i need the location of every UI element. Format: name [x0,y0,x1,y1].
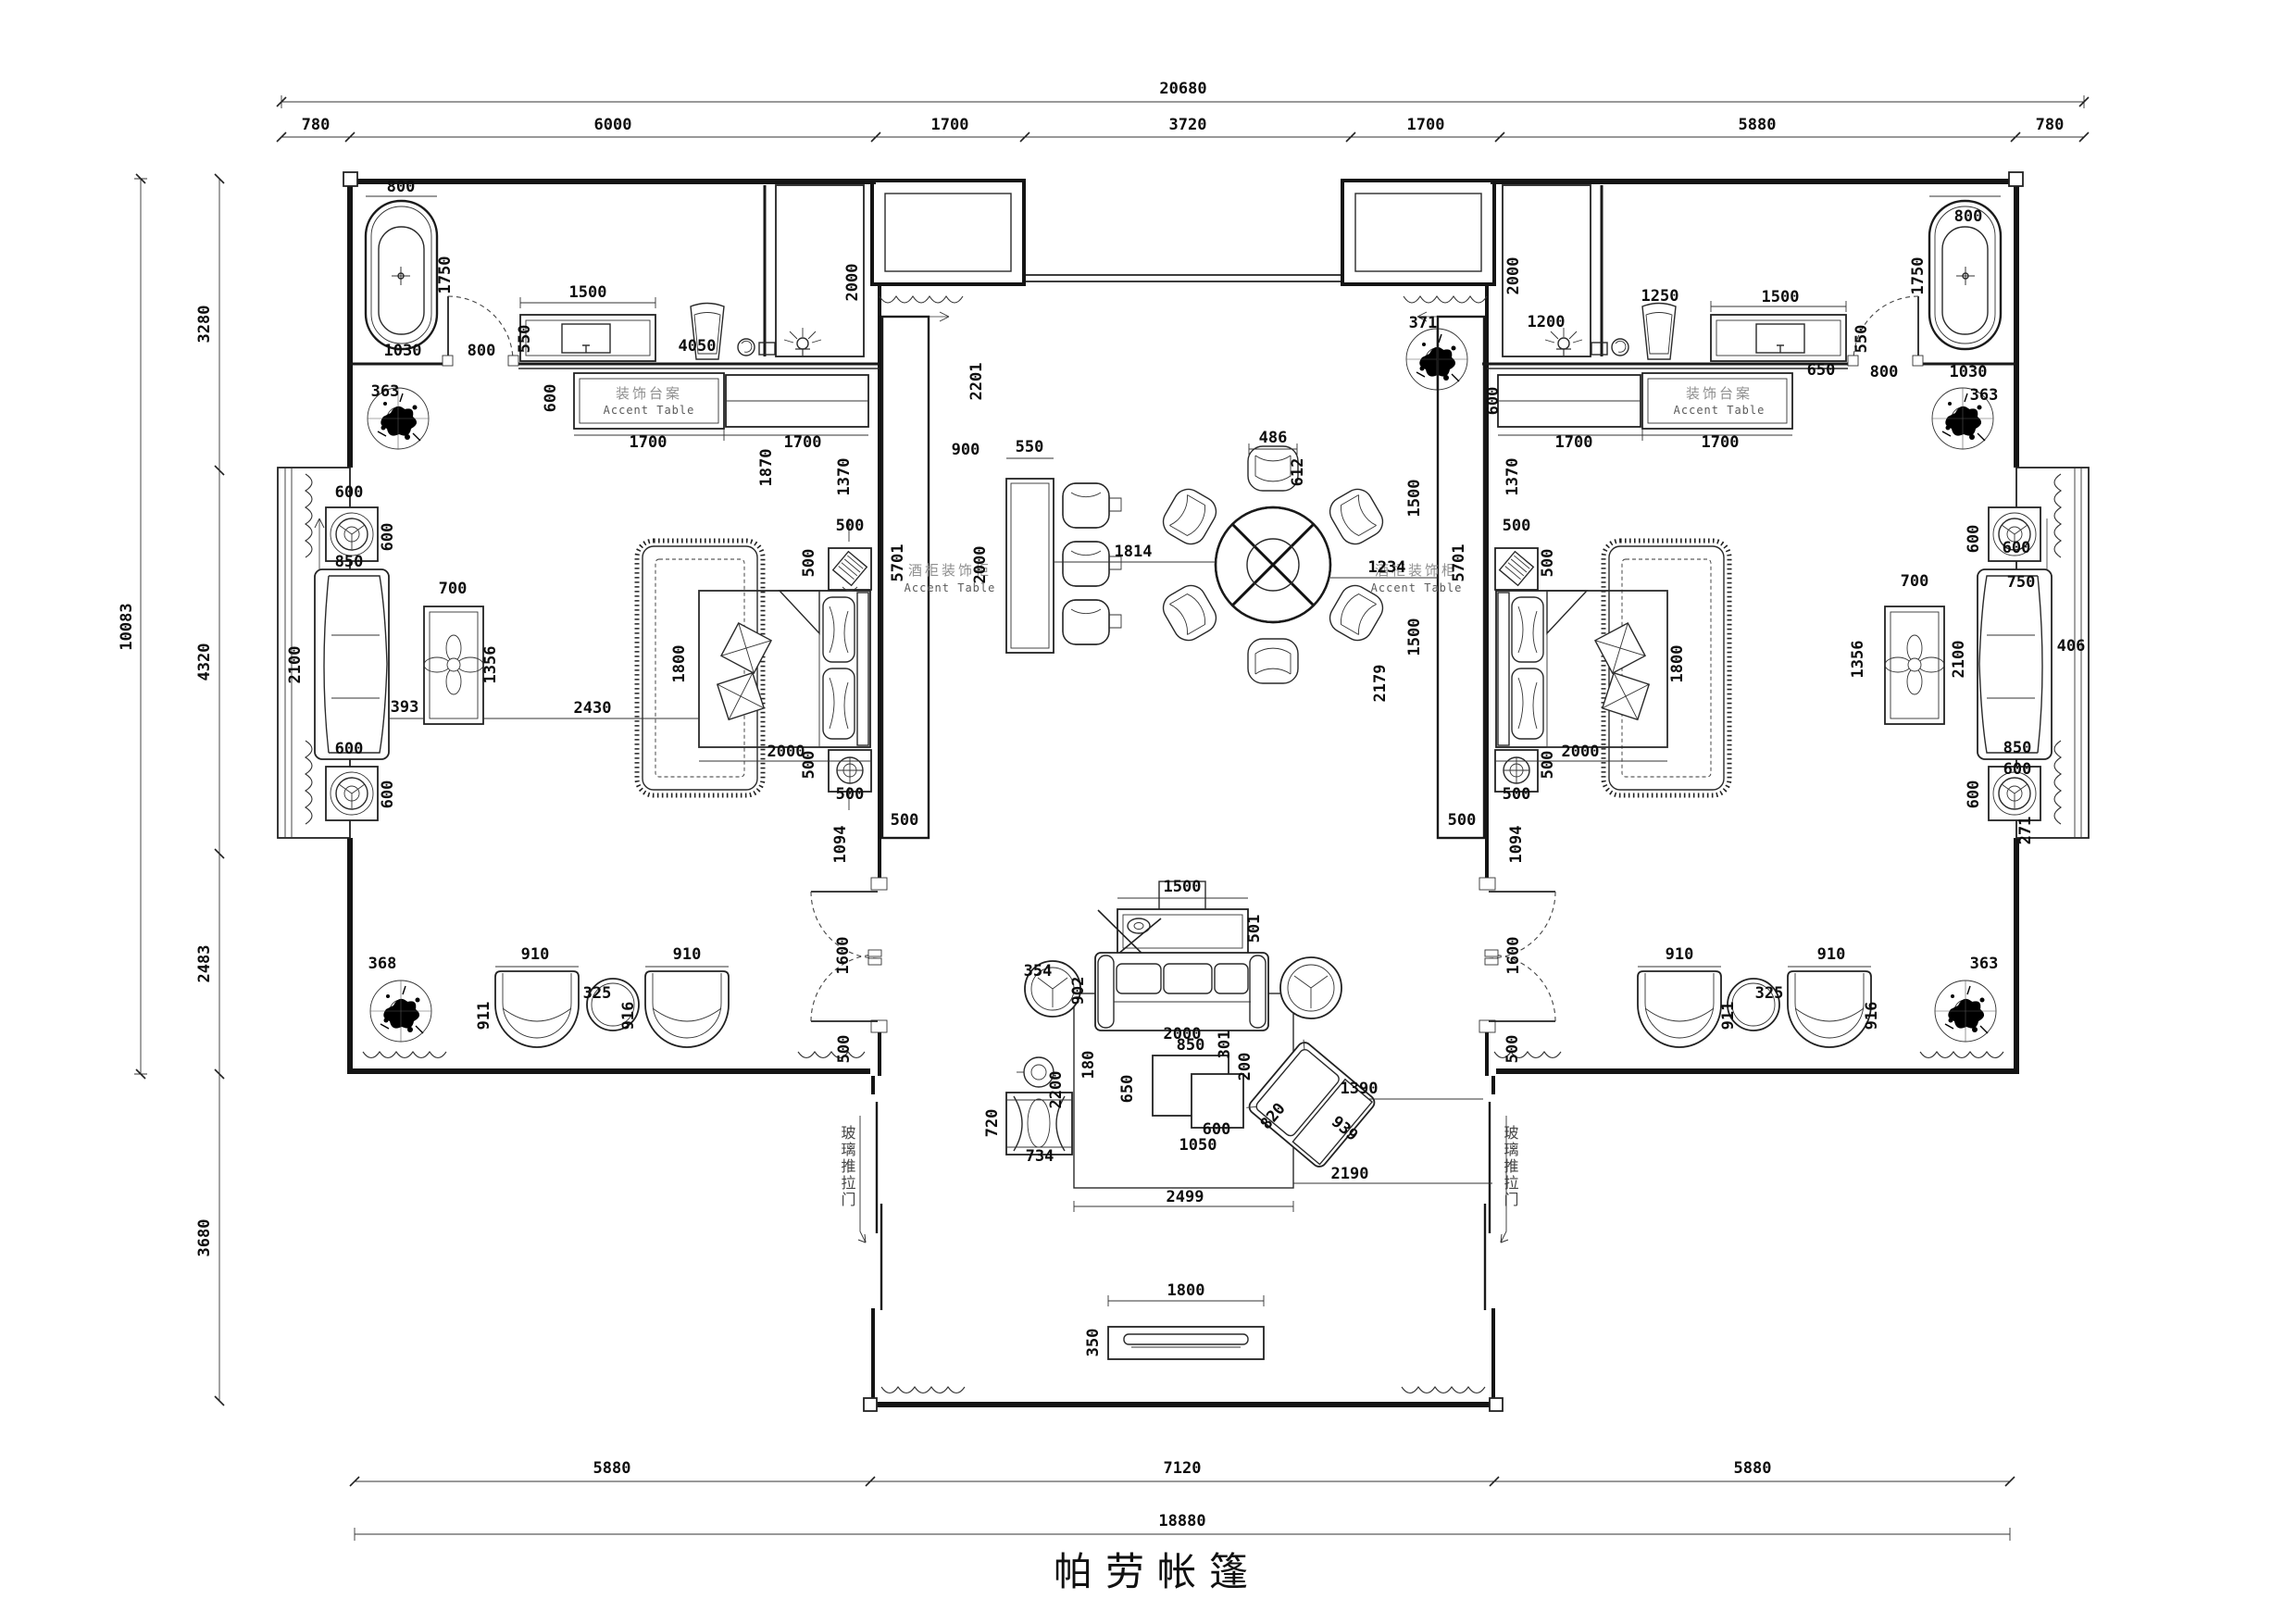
dim-label: 486 [1259,429,1288,447]
dim-label: 1030 [384,342,422,360]
hamper-right [1591,304,1676,360]
dim-label: 600 [542,384,560,413]
dim-label: 4320 [195,643,214,681]
dim-label: 600 [335,483,364,502]
dim-label: 1800 [670,645,689,683]
dim-label: 780 [2036,116,2065,134]
dim-label: 2499 [1167,1188,1204,1206]
dim-label: 910 [1817,945,1846,964]
dim-label: 368 [368,955,397,973]
dim-label: 1030 [1950,363,1988,381]
dim-label: 600 [379,523,397,552]
dim-label: 500 [836,785,865,804]
dim-label: 550 [516,325,534,354]
dim-label: 2201 [967,363,986,401]
dim-label: 2200 [1047,1071,1066,1109]
dim-label: 600 [1484,387,1503,416]
dim-label: 363 [1970,386,1999,405]
dim-label: 325 [1755,984,1784,1003]
dim-label: 2000 [971,546,990,584]
dim-label: 650 [1807,361,1836,380]
bathtub-left [366,201,437,349]
closet-box-left [872,181,1024,284]
dim-label: 902 [1069,977,1088,1006]
dim-label: 600 [1965,525,1983,554]
dim-label: 550 [1853,325,1871,354]
sliding-door-right: 玻璃推拉门 [1485,1102,1519,1310]
nightstand-right-top [1495,548,1538,590]
dim-label: 2100 [286,646,305,684]
dim-label: 600 [379,781,397,809]
dim-label: 1700 [1407,116,1445,134]
dim-label: 500 [1448,811,1477,830]
sliding-door-left: 玻璃推拉门 [839,1102,882,1310]
side-table-left-bottom [326,767,378,820]
dim-label: 2483 [195,945,214,983]
dim-label: 2430 [574,699,612,718]
living-sofa [1095,953,1268,1031]
dim-label: 1050 [1179,1136,1217,1155]
closet-box-right [1342,181,1494,284]
dim-label: 500 [800,751,818,780]
dim-label: 5880 [1739,116,1777,134]
dim-label: 3280 [195,306,214,344]
dim-label: 500 [1504,1035,1522,1064]
dim-label: 600 [2003,539,2031,557]
floor-plan-svg: 装饰台案 Accent Table 装饰台案 Accent Table [0,0,2296,1624]
coffee-table-left-wing [424,606,483,724]
dim-label: 1500 [569,283,607,302]
floor-plan-page: 装饰台案 Accent Table 装饰台案 Accent Table [0,0,2296,1624]
lounge-chair [1246,1040,1377,1169]
dimension-chains [134,95,2089,1541]
accent-table-right-cn: 装饰台案 [1686,385,1753,402]
sliding-door-left-label: 玻璃推拉门 [839,1125,856,1208]
walls [343,172,2023,1411]
dim-label: 1870 [757,449,776,487]
dim-label: 1094 [1507,826,1526,864]
dim-label: 500 [1539,549,1557,578]
dim-label: 2190 [1331,1165,1369,1183]
dim-label: 393 [391,698,419,717]
sliding-door-right-label: 玻璃推拉门 [1502,1125,1519,1208]
dim-label: 10083 [118,603,136,650]
dim-label: 800 [1954,207,1983,226]
dim-label: 18880 [1158,1512,1205,1530]
coffee-table-right-wing [1885,606,1944,724]
dim-label: 850 [335,553,364,571]
dim-label: 301 [1216,1031,1234,1059]
dim-label: 910 [521,945,550,964]
dim-label: 1500 [1164,878,1202,896]
dim-label: 1600 [834,937,853,975]
accent-table-left: 装饰台案 Accent Table [574,373,724,429]
dim-label: 800 [387,178,416,196]
dim-label: 1356 [1849,641,1867,679]
accent-table-right-en: Accent Table [1674,404,1766,417]
dim-label: 850 [1177,1036,1205,1055]
dim-label: 2100 [1950,641,1968,679]
accent-table-left-en: Accent Table [604,404,695,417]
dim-label: 700 [1901,572,1929,591]
dim-label: 1356 [481,646,500,684]
dim-label: 500 [835,1035,854,1064]
dim-label: 6000 [594,116,632,134]
dim-label: 1700 [1555,433,1593,452]
dim-label: 1814 [1115,543,1153,561]
dim-label: 600 [335,740,364,758]
dimension-labels: 2068078060001700372017005880780100833280… [118,80,2085,1530]
dim-label: 350 [1084,1329,1103,1357]
dim-label: 1234 [1368,558,1406,577]
curtain-decorations [363,296,2003,1393]
dim-label: 271 [2016,817,2035,845]
dim-label: 5701 [889,544,907,582]
dim-label: 612 [1289,458,1307,487]
dim-label: 911 [475,1002,493,1031]
dim-label: 180 [1079,1051,1098,1080]
dim-label: 800 [468,342,496,360]
dim-label: 916 [619,1002,638,1031]
dim-label: 500 [1503,785,1531,804]
dim-label: 500 [1539,751,1557,780]
dim-label: 750 [2007,573,2036,592]
dim-label: 1600 [1504,937,1523,975]
tv-console [1108,1327,1264,1359]
dim-label: 700 [439,580,468,598]
dim-label: 5880 [1734,1459,1772,1478]
dim-label: 5701 [1450,544,1468,582]
dim-label: 2000 [1504,257,1523,295]
dining-table [1216,507,1330,622]
dim-label: 1500 [1405,480,1424,518]
dim-label: 910 [1666,945,1694,964]
dim-label: 7120 [1164,1459,1202,1478]
dim-label: 406 [2057,637,2086,656]
dim-label: 1370 [835,458,854,496]
dim-label: 20680 [1159,80,1206,98]
accent-table-left-cn: 装饰台案 [616,385,682,402]
dim-label: 1250 [1641,287,1679,306]
dim-label: 3680 [195,1219,214,1257]
dim-label: 354 [1024,962,1053,981]
dim-label: 363 [1970,955,1999,973]
sofa-right-wing [1978,569,2052,759]
dim-label: 325 [583,984,612,1003]
dim-label: 2000 [1562,743,1600,761]
dim-label: 850 [2003,739,2032,757]
dim-label: 1800 [1668,645,1687,683]
dim-label: 1750 [436,256,455,294]
dim-label: 363 [371,382,400,401]
dim-label: 4050 [679,337,717,356]
side-table-living-right [1280,957,1341,1018]
sideboard [1006,479,1054,653]
dim-label: 2000 [843,264,862,302]
dim-label: 371 [1409,314,1438,332]
dim-label: 600 [2003,760,2032,779]
sofa-left-wing [315,569,389,759]
wine-cabinet-right-en: Accent Table [1371,581,1463,594]
wardrobe-rail-right [1498,375,1641,427]
dim-label: 780 [302,116,331,134]
dim-label: 1700 [931,116,969,134]
dim-label: 3720 [1169,116,1207,134]
dim-label: 1700 [784,433,822,452]
dim-label: 1700 [1702,433,1740,452]
dim-label: 650 [1118,1075,1137,1104]
dim-label: 1094 [831,826,850,864]
accent-table-right: 装饰台案 Accent Table [1642,373,1792,429]
dim-label: 1500 [1762,288,1800,306]
dim-label: 500 [836,517,865,535]
dim-label: 1390 [1341,1080,1379,1098]
dim-label: 1800 [1167,1281,1205,1300]
dim-label: 1700 [630,433,668,452]
dim-label: 1200 [1528,313,1566,331]
dim-label: 1370 [1504,458,1522,496]
dim-label: 1500 [1405,618,1424,656]
dim-label: 734 [1026,1147,1054,1166]
dim-label: 1750 [1909,257,1928,295]
bed-right [1496,591,1667,747]
dim-label: 200 [1236,1053,1254,1081]
dim-label: 720 [983,1109,1002,1138]
dim-label: 500 [1503,517,1531,535]
dim-label: 2179 [1371,665,1390,703]
dim-label: 500 [800,549,818,578]
wardrobe-rail-left [726,375,868,427]
dim-label: 550 [1016,438,1044,456]
bed-left [699,591,870,747]
dim-label: 5880 [593,1459,631,1478]
dim-label: 501 [1245,915,1264,943]
drawing-title: 帕劳帐篷 [1054,1552,1261,1594]
dim-label: 600 [1965,781,1983,809]
dim-label: 916 [1863,1002,1881,1031]
dim-label: 500 [891,811,919,830]
dim-label: 800 [1870,363,1899,381]
nightstand-left-top [829,548,871,591]
dim-label: 910 [673,945,702,964]
dim-label: 911 [1719,1002,1738,1031]
dim-label: 900 [952,441,980,459]
